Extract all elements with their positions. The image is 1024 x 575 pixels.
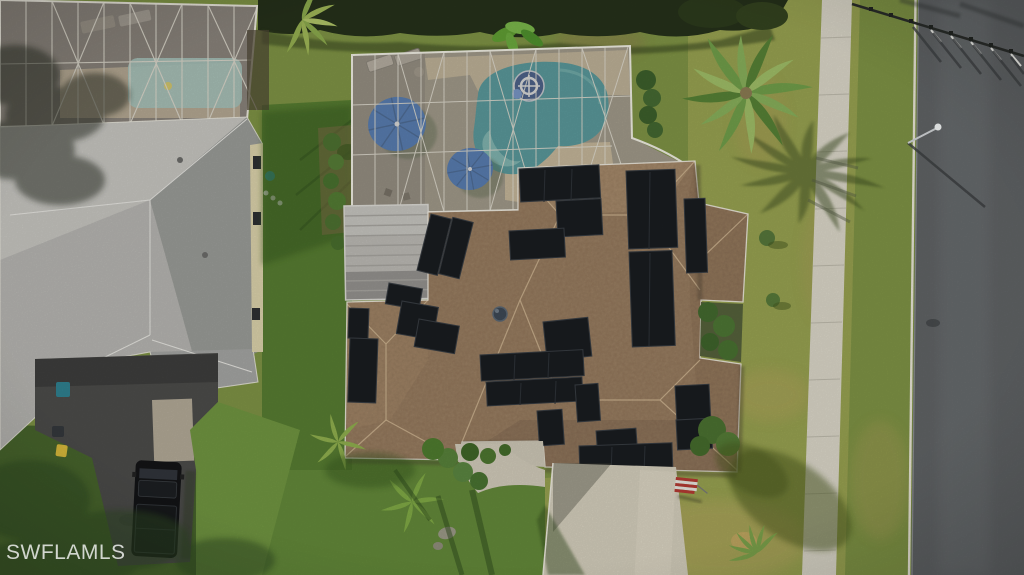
aerial-photo: SWFLAMLS [0,0,1024,575]
vignette [0,0,1024,575]
watermark: SWFLAMLS [6,541,126,565]
